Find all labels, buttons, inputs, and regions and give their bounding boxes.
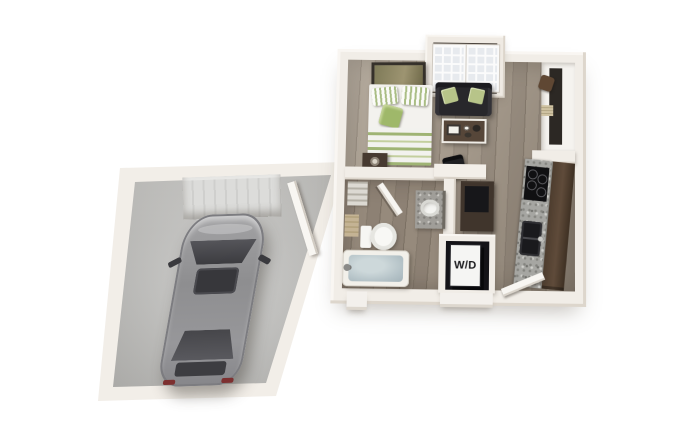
apartment-unit: W/D (330, 49, 586, 307)
floor-plan-scene: W/D (0, 0, 700, 437)
coffee-table (442, 118, 487, 143)
entry-closet (541, 62, 575, 151)
table-lamp (370, 157, 379, 166)
vanity-round-sink (420, 199, 439, 216)
toilet (360, 223, 397, 252)
linen-shelves (347, 181, 368, 205)
garage-room (95, 158, 351, 406)
burner (537, 174, 548, 185)
wall-partition (434, 164, 486, 180)
desk-top (465, 186, 489, 212)
closet-basket (541, 105, 553, 116)
side-step (346, 291, 367, 310)
sofa-accent-pillow (441, 87, 459, 105)
sofa-accent-pillow (468, 87, 486, 105)
toilet-bowl (370, 223, 397, 251)
sofa (435, 82, 492, 116)
green-throw-pillow (378, 104, 404, 129)
cooktop (523, 166, 549, 202)
sink-divider (523, 237, 539, 241)
washer-dryer-label: W/D (454, 259, 477, 272)
washer-dryer-unit: W/D (449, 244, 481, 287)
bathtub-water (348, 255, 403, 282)
serving-tray (447, 124, 461, 135)
car-sunroof (193, 267, 240, 294)
kitchen-faucet (538, 236, 543, 242)
bed-pillow (401, 86, 429, 107)
bath-storage-cabinet (344, 214, 359, 236)
table-dish (465, 133, 472, 138)
desk (460, 181, 494, 232)
car-taillight-left (163, 380, 176, 385)
table-dish (464, 126, 470, 131)
entry-step (440, 293, 493, 308)
laundry-closet: W/D (438, 234, 495, 294)
laundry-alcove: W/D (445, 241, 489, 290)
burner (526, 180, 537, 191)
car-taillight-right (221, 378, 234, 383)
car-trunk-glass (174, 361, 227, 377)
burner (536, 187, 547, 198)
bathtub (342, 250, 410, 288)
table-bowl (473, 125, 481, 132)
wall-partition (345, 166, 445, 180)
vanity (415, 190, 446, 229)
